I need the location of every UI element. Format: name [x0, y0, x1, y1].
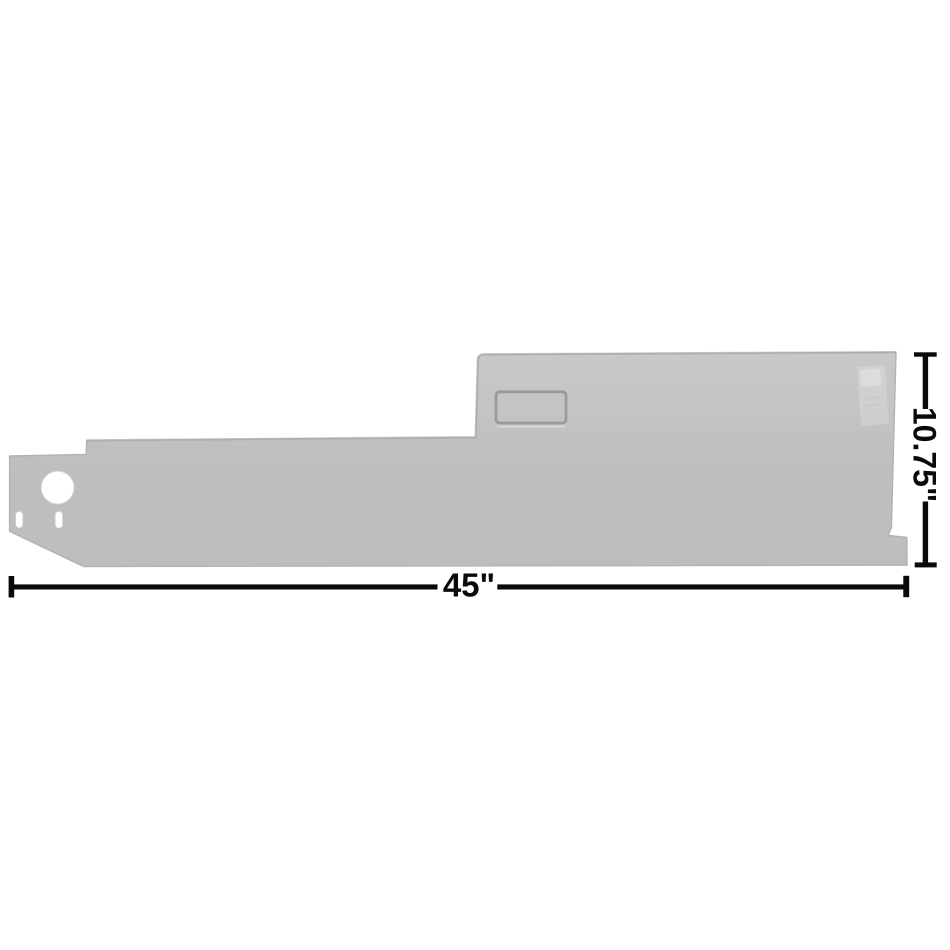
svg-text:10.75": 10.75" — [907, 407, 943, 502]
svg-text:45": 45" — [443, 566, 495, 603]
